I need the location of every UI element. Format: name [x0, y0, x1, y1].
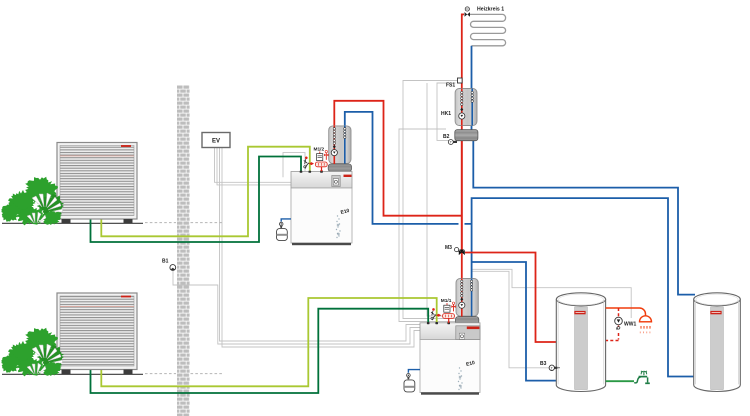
svg-text:FS1: FS1 [446, 83, 455, 89]
svg-text:WW1: WW1 [624, 322, 636, 328]
svg-text:Heizkreis 1: Heizkreis 1 [477, 7, 504, 13]
svg-text:HK1: HK1 [441, 111, 451, 117]
svg-text:M1/2: M1/2 [314, 147, 325, 153]
svg-text:M1/1: M1/1 [441, 298, 452, 304]
svg-text:B2: B2 [443, 134, 450, 140]
svg-text:B1: B1 [162, 259, 169, 265]
svg-text:EV: EV [212, 139, 220, 145]
svg-text:B3: B3 [540, 361, 547, 367]
svg-text:M3: M3 [445, 245, 452, 251]
